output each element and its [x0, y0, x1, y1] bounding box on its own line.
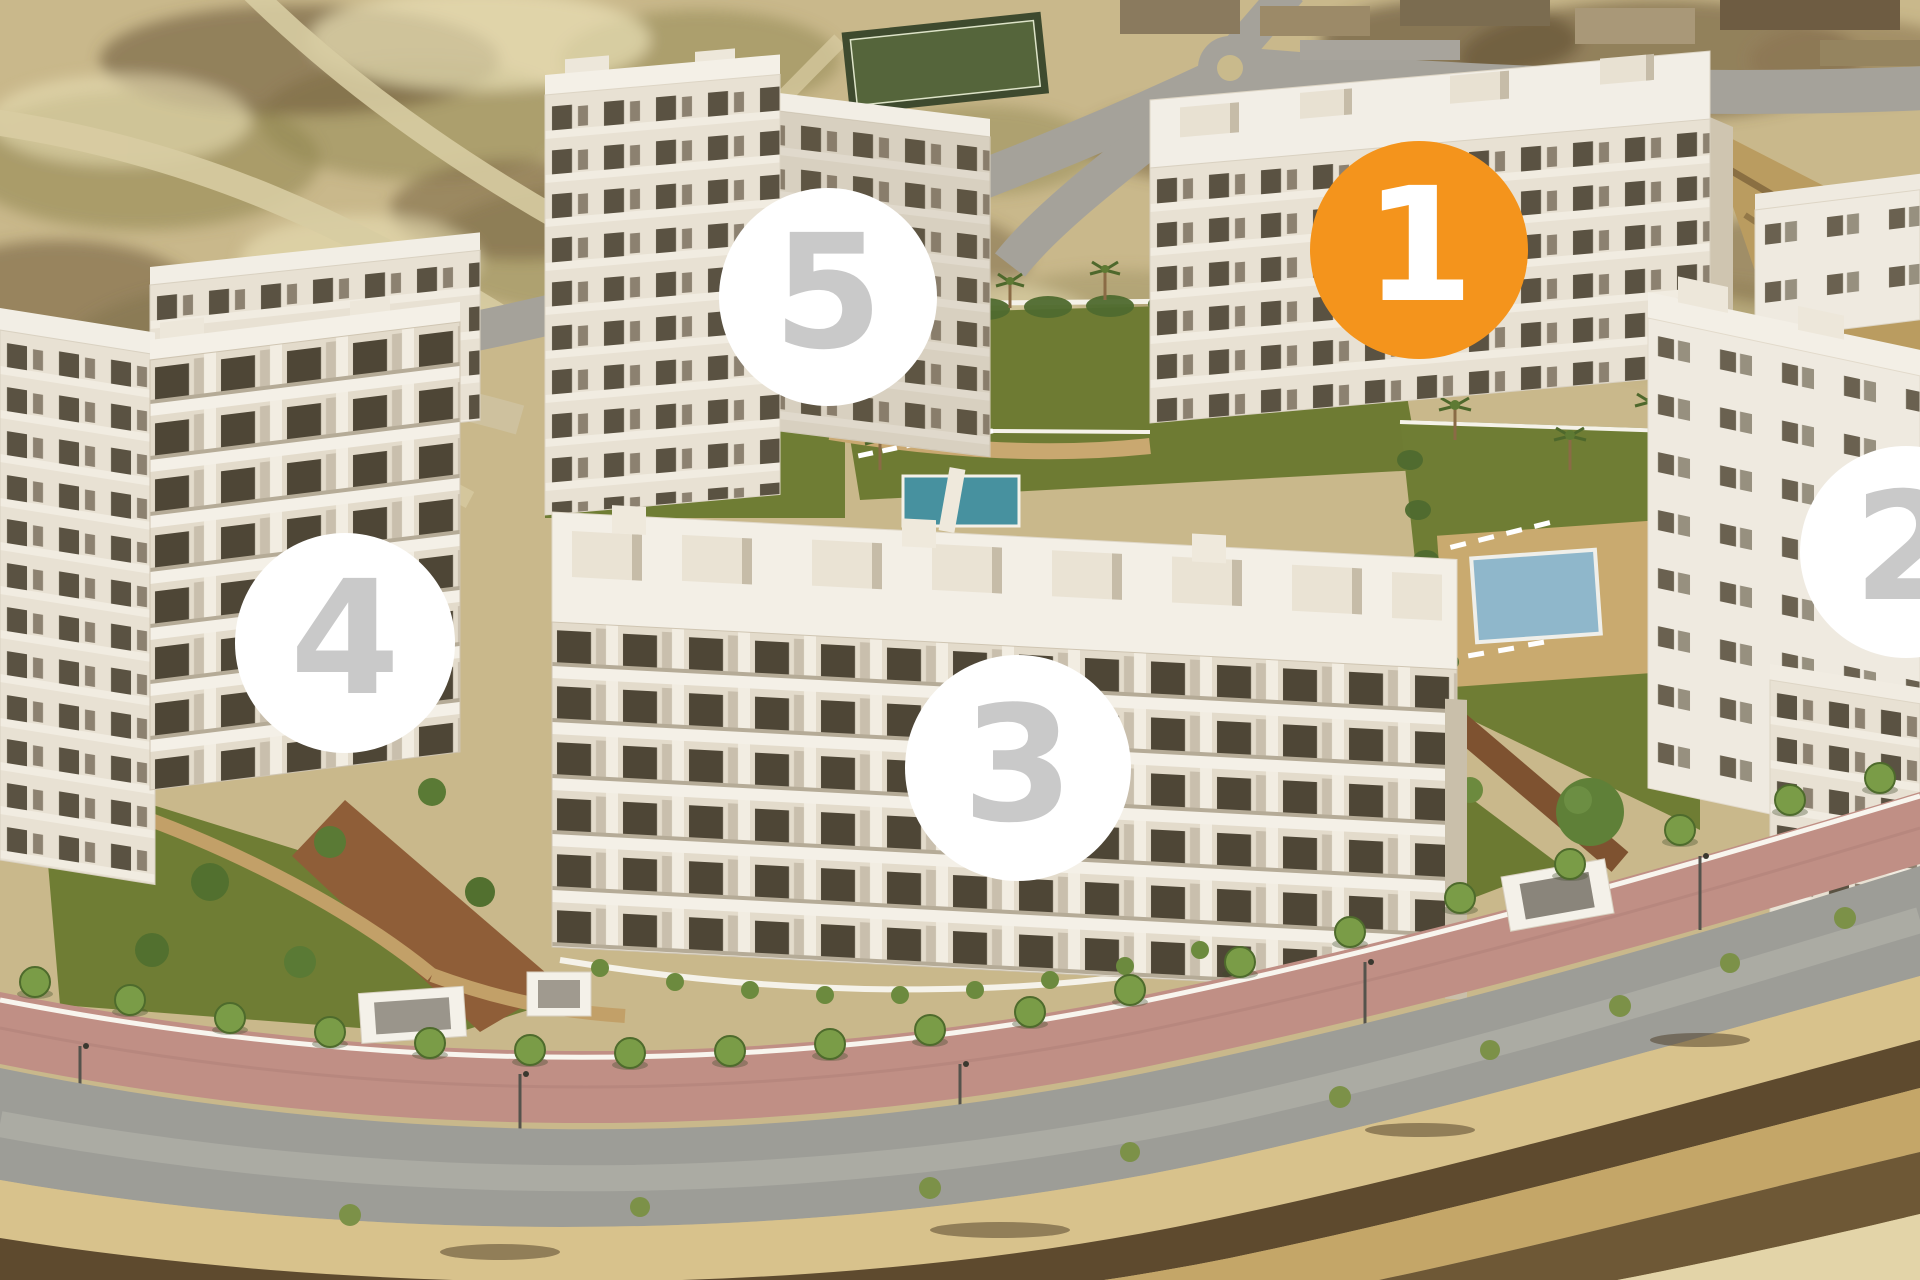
- building-marker-4[interactable]: 4: [235, 533, 455, 753]
- side-gate: [527, 972, 591, 1016]
- entrance-gate: [358, 986, 466, 1043]
- building-marker-3-label: 3: [962, 671, 1073, 858]
- building-marker-2-label: 2: [1854, 461, 1920, 635]
- square-pool: [1437, 520, 1663, 687]
- building-marker-4-label: 4: [290, 547, 400, 731]
- building-marker-5-label: 5: [773, 201, 883, 385]
- building-marker-3[interactable]: 3: [905, 655, 1131, 881]
- building-marker-1-label: 1: [1364, 154, 1474, 338]
- building-marker-5[interactable]: 5: [719, 188, 937, 406]
- building-marker-1[interactable]: 1: [1310, 141, 1528, 359]
- aerial-render-stage: 1 2 3 4 5: [0, 0, 1920, 1280]
